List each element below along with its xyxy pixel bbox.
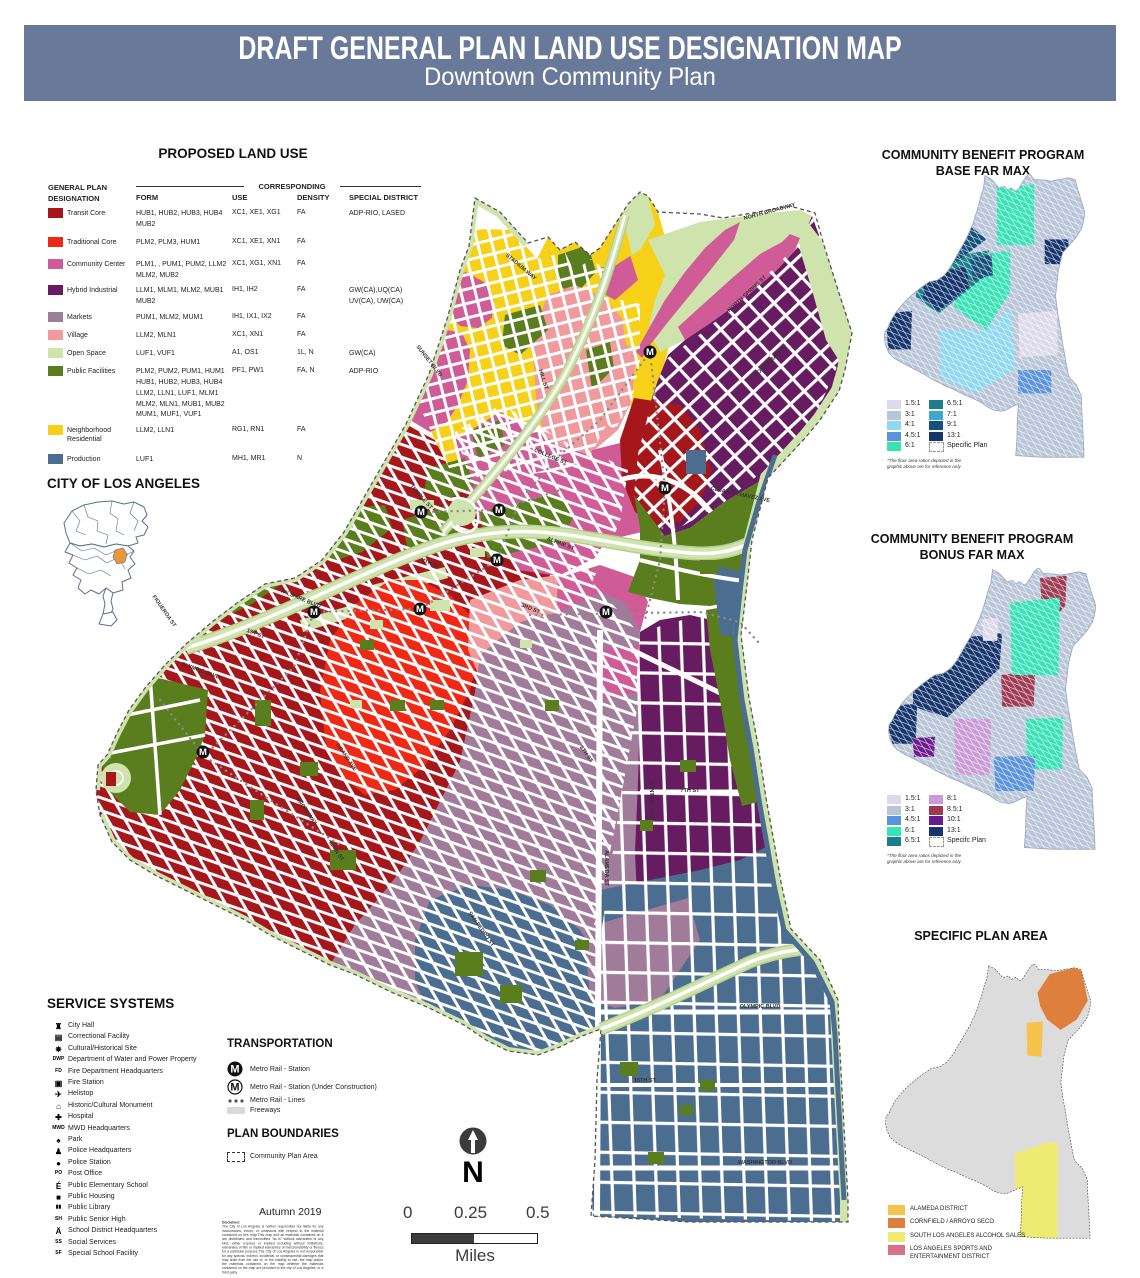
svg-text:CENTRAL AVE: CENTRAL AVE	[648, 781, 654, 820]
svg-text:M: M	[417, 507, 425, 518]
svg-text:M: M	[646, 347, 654, 358]
svg-text:M: M	[199, 747, 207, 758]
svg-text:OLYMPIC BLVD: OLYMPIC BLVD	[740, 1004, 781, 1010]
svg-text:M: M	[416, 604, 424, 615]
svg-text:WASHINGTON BLVD: WASHINGTON BLVD	[738, 1160, 792, 1166]
svg-text:M: M	[230, 1064, 239, 1076]
svg-text:16TH ST: 16TH ST	[634, 1078, 657, 1084]
svg-text:M: M	[495, 505, 503, 516]
svg-text:M: M	[493, 555, 501, 566]
svg-text:7TH ST: 7TH ST	[681, 788, 701, 794]
svg-text:N: N	[462, 1156, 484, 1188]
svg-text:M: M	[602, 607, 610, 618]
svg-text:M: M	[661, 483, 669, 494]
svg-text:ALAMEDA ST: ALAMEDA ST	[603, 850, 609, 886]
svg-text:M: M	[230, 1082, 239, 1094]
